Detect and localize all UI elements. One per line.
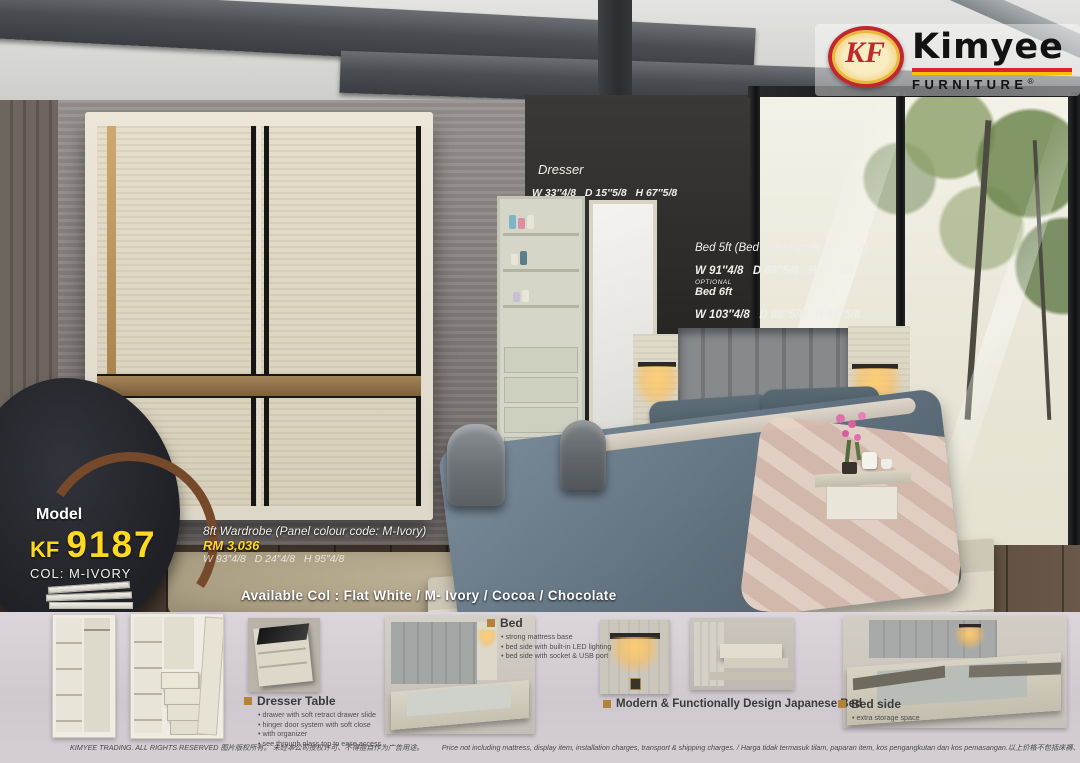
flower-pot (842, 462, 857, 474)
wardrobe-title: 8ft Wardrobe (Panel colour code: M-Ivory… (203, 524, 426, 538)
stool-back (560, 420, 606, 490)
kf-monogram: KF (845, 38, 885, 68)
window-mullion-3 (1068, 92, 1080, 560)
bullet-square-icon (603, 700, 611, 708)
bed-6ft-label: Bed 6ft (695, 286, 868, 298)
bed-title: Bed 5ft (Bed colour code :989-13) (695, 242, 868, 254)
white-jar (862, 452, 877, 469)
list-item: with organizer (258, 729, 381, 739)
brand-name: Kimyee (912, 30, 1072, 65)
feature-bed: Bed strong mattress base bed side with b… (487, 616, 611, 661)
list-item: bed side with built-in LED lighting (501, 642, 611, 652)
wardrobe-price: RM 3,036 (203, 538, 426, 553)
feature-dresser-table-title: Dresser Table (257, 694, 336, 708)
scene-photo: KF Kimyee FURNITURE ® Dresser W 33″4/8 D… (0, 0, 1080, 618)
thumb-wardrobe-open-2 (130, 613, 224, 739)
dresser-dims: W 33″4/8 D 15″5/8 H 67″5/8 (532, 187, 677, 199)
bullet-square-icon (487, 619, 495, 627)
model-colour: COL: M-IVORY (30, 566, 157, 581)
bullet-square-icon (838, 700, 846, 708)
list-item: bed side with socket & USB port (501, 651, 611, 661)
magazine-stack (46, 584, 136, 614)
footer-disclaimer: KIMYEE TRADING. ALL RIGHTS RESERVED 图片版权… (70, 743, 1080, 753)
brand-stripe-yellow (912, 72, 1072, 75)
registered-mark: ® (1028, 77, 1034, 86)
wardrobe-dims: W 93″4/8 D 24″4/8 H 95″4/8 (203, 553, 426, 565)
kf-logo-badge: KF (828, 26, 904, 88)
wardrobe-black-edge-3 (416, 126, 421, 506)
list-item: hinger door system with soft close (258, 720, 381, 730)
feature-bed-side-title: Bed side (851, 697, 901, 711)
nightstand (826, 486, 898, 520)
stool-front (447, 424, 505, 506)
brand-tagline: FURNITURE (912, 77, 1028, 92)
feature-japanese-bed: Modern & Functionally Design Japanese Be… (603, 698, 862, 710)
bed-dims-6ft: W 103″4/8 D 88″5/8 H 47″5/8 (695, 309, 868, 321)
feature-japanese-bed-title: Modern & Functionally Design Japanese Be… (616, 698, 862, 710)
list-item: drawer with soft retract drawer slide (258, 710, 381, 720)
list-item: strong mattress base (501, 632, 611, 642)
wardrobe-spec-block: 8ft Wardrobe (Panel colour code: M-Ivory… (203, 524, 426, 565)
brand-lockup: Kimyee FURNITURE ® (912, 30, 1072, 92)
wardrobe-black-edge-1 (251, 126, 256, 506)
feature-bed-side: Bed side extra storage space (838, 697, 920, 723)
feature-bed-title: Bed (500, 616, 523, 630)
bed-dims-5ft: W 91″4/8 D 88″5/8 H 47″5/8 (695, 265, 868, 277)
model-prefix: KF (30, 537, 59, 563)
wardrobe-black-edge-2 (264, 126, 269, 506)
thumb-dresser-table (248, 618, 320, 692)
feature-dresser-table: Dresser Table drawer with soft retract d… (244, 694, 381, 748)
dresser-label: Dresser (538, 162, 584, 177)
feature-bed-side-bullets: extra storage space (852, 713, 920, 723)
model-label: Model (36, 506, 157, 524)
bullet-square-icon (244, 697, 252, 705)
list-item: extra storage space (852, 713, 920, 723)
footer-rights: KIMYEE TRADING. ALL RIGHTS RESERVED 图片版权… (70, 743, 424, 753)
model-block: Model KF 9187 COL: M-IVORY (30, 506, 157, 581)
wardrobe-bronze-band (97, 374, 421, 398)
bed-spec-block: Bed 5ft (Bed colour code :989-13) W 91″4… (695, 242, 868, 321)
optional-label: OPTIONAL (695, 279, 868, 286)
wardrobe-door-right (261, 126, 421, 506)
footer-pricing-note: Price not including mattress, display it… (442, 743, 1080, 753)
thumb-wardrobe-open-1 (52, 614, 116, 738)
thumb-side-drawer (690, 618, 794, 690)
feature-bed-bullets: strong mattress base bed side with built… (501, 632, 611, 661)
available-colours-line: Available Col : Flat White / M- Ivory / … (241, 588, 617, 603)
catalog-page: KF Kimyee FURNITURE ® Dresser W 33″4/8 D… (0, 0, 1080, 763)
white-cup (881, 459, 892, 469)
model-number: 9187 (66, 524, 156, 566)
